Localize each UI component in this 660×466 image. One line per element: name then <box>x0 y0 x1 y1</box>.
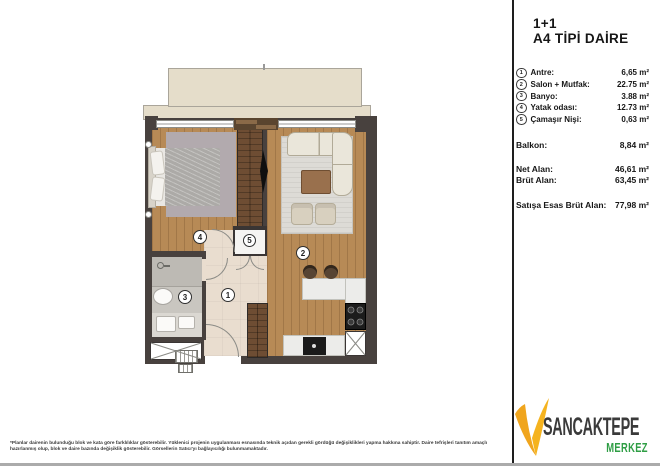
unit-type: 1+1 <box>533 16 628 31</box>
room-area: 22.75 m² <box>617 80 649 89</box>
floor-plan-page: 1 2 3 4 5 1+1 A4 TİPİ DAİRE 1 Antre: 6,6… <box>0 0 660 466</box>
plan-label-camasir: 5 <box>243 234 256 247</box>
sales-gross-value: 77,98 m² <box>615 200 649 210</box>
room-area: 0,63 m² <box>621 115 649 124</box>
room-area: 3.88 m² <box>621 92 649 101</box>
gross-area-label: Brüt Alan: <box>516 175 557 185</box>
plan-detail-overlay <box>140 60 385 380</box>
room-row-yatak: 4 Yatak odası: 12.73 m² <box>516 102 649 114</box>
unit-plan-name: A4 TİPİ DAİRE <box>533 31 628 46</box>
logo-name: SANCAKTEPE <box>543 413 639 442</box>
net-area-value: 46,61 m² <box>615 164 649 174</box>
room-area: 6,65 m² <box>621 68 649 77</box>
sales-gross-label: Satışa Esas Brüt Alan: <box>516 200 606 210</box>
room-num-badge: 4 <box>516 103 527 114</box>
room-num-badge: 3 <box>516 91 527 102</box>
net-area-row: Net Alan: 46,61 m² <box>516 164 649 174</box>
balcony-area: 8,84 m² <box>620 140 649 150</box>
sales-gross-area-row: Satışa Esas Brüt Alan: 77,98 m² <box>516 200 649 210</box>
gross-area-value: 63,45 m² <box>615 175 649 185</box>
disclaimer-text: *Planlar dairenin bulunduğu blok ve kata… <box>10 441 502 453</box>
net-area-label: Net Alan: <box>516 164 553 174</box>
tv-icon <box>260 150 268 193</box>
room-label: Çamaşır Nişi: <box>531 115 622 124</box>
plan-label-banyo: 3 <box>178 290 192 304</box>
room-label: Yatak odası: <box>531 103 617 112</box>
room-label: Salon + Mutfak: <box>531 80 617 89</box>
logo-subtitle: MERKEZ <box>606 440 648 455</box>
room-row-salon: 2 Salon + Mutfak: 22.75 m² <box>516 79 649 91</box>
room-list: 1 Antre: 6,65 m² 2 Salon + Mutfak: 22.75… <box>516 67 649 125</box>
room-row-banyo: 3 Banyo: 3.88 m² <box>516 90 649 102</box>
room-label: Antre: <box>531 68 622 77</box>
room-area: 12.73 m² <box>617 103 649 112</box>
room-num-badge: 1 <box>516 68 527 79</box>
gross-area-row: Brüt Alan: 63,45 m² <box>516 175 649 185</box>
balcony-row: Balkon: 8,84 m² <box>516 140 649 150</box>
room-label: Banyo: <box>531 92 622 101</box>
plan-label-salon: 2 <box>296 246 310 260</box>
room-row-antre: 1 Antre: 6,65 m² <box>516 67 649 79</box>
room-num-badge: 2 <box>516 79 527 90</box>
room-row-camasir: 5 Çamaşır Nişi: 0,63 m² <box>516 114 649 126</box>
room-num-badge: 5 <box>516 114 527 125</box>
plan-label-antre: 1 <box>221 288 235 302</box>
balcony-label: Balkon: <box>516 140 547 150</box>
unit-title: 1+1 A4 TİPİ DAİRE <box>533 16 628 46</box>
brand-logo: SANCAKTEPE MERKEZ <box>514 396 652 462</box>
plan-label-yatak: 4 <box>193 230 207 244</box>
